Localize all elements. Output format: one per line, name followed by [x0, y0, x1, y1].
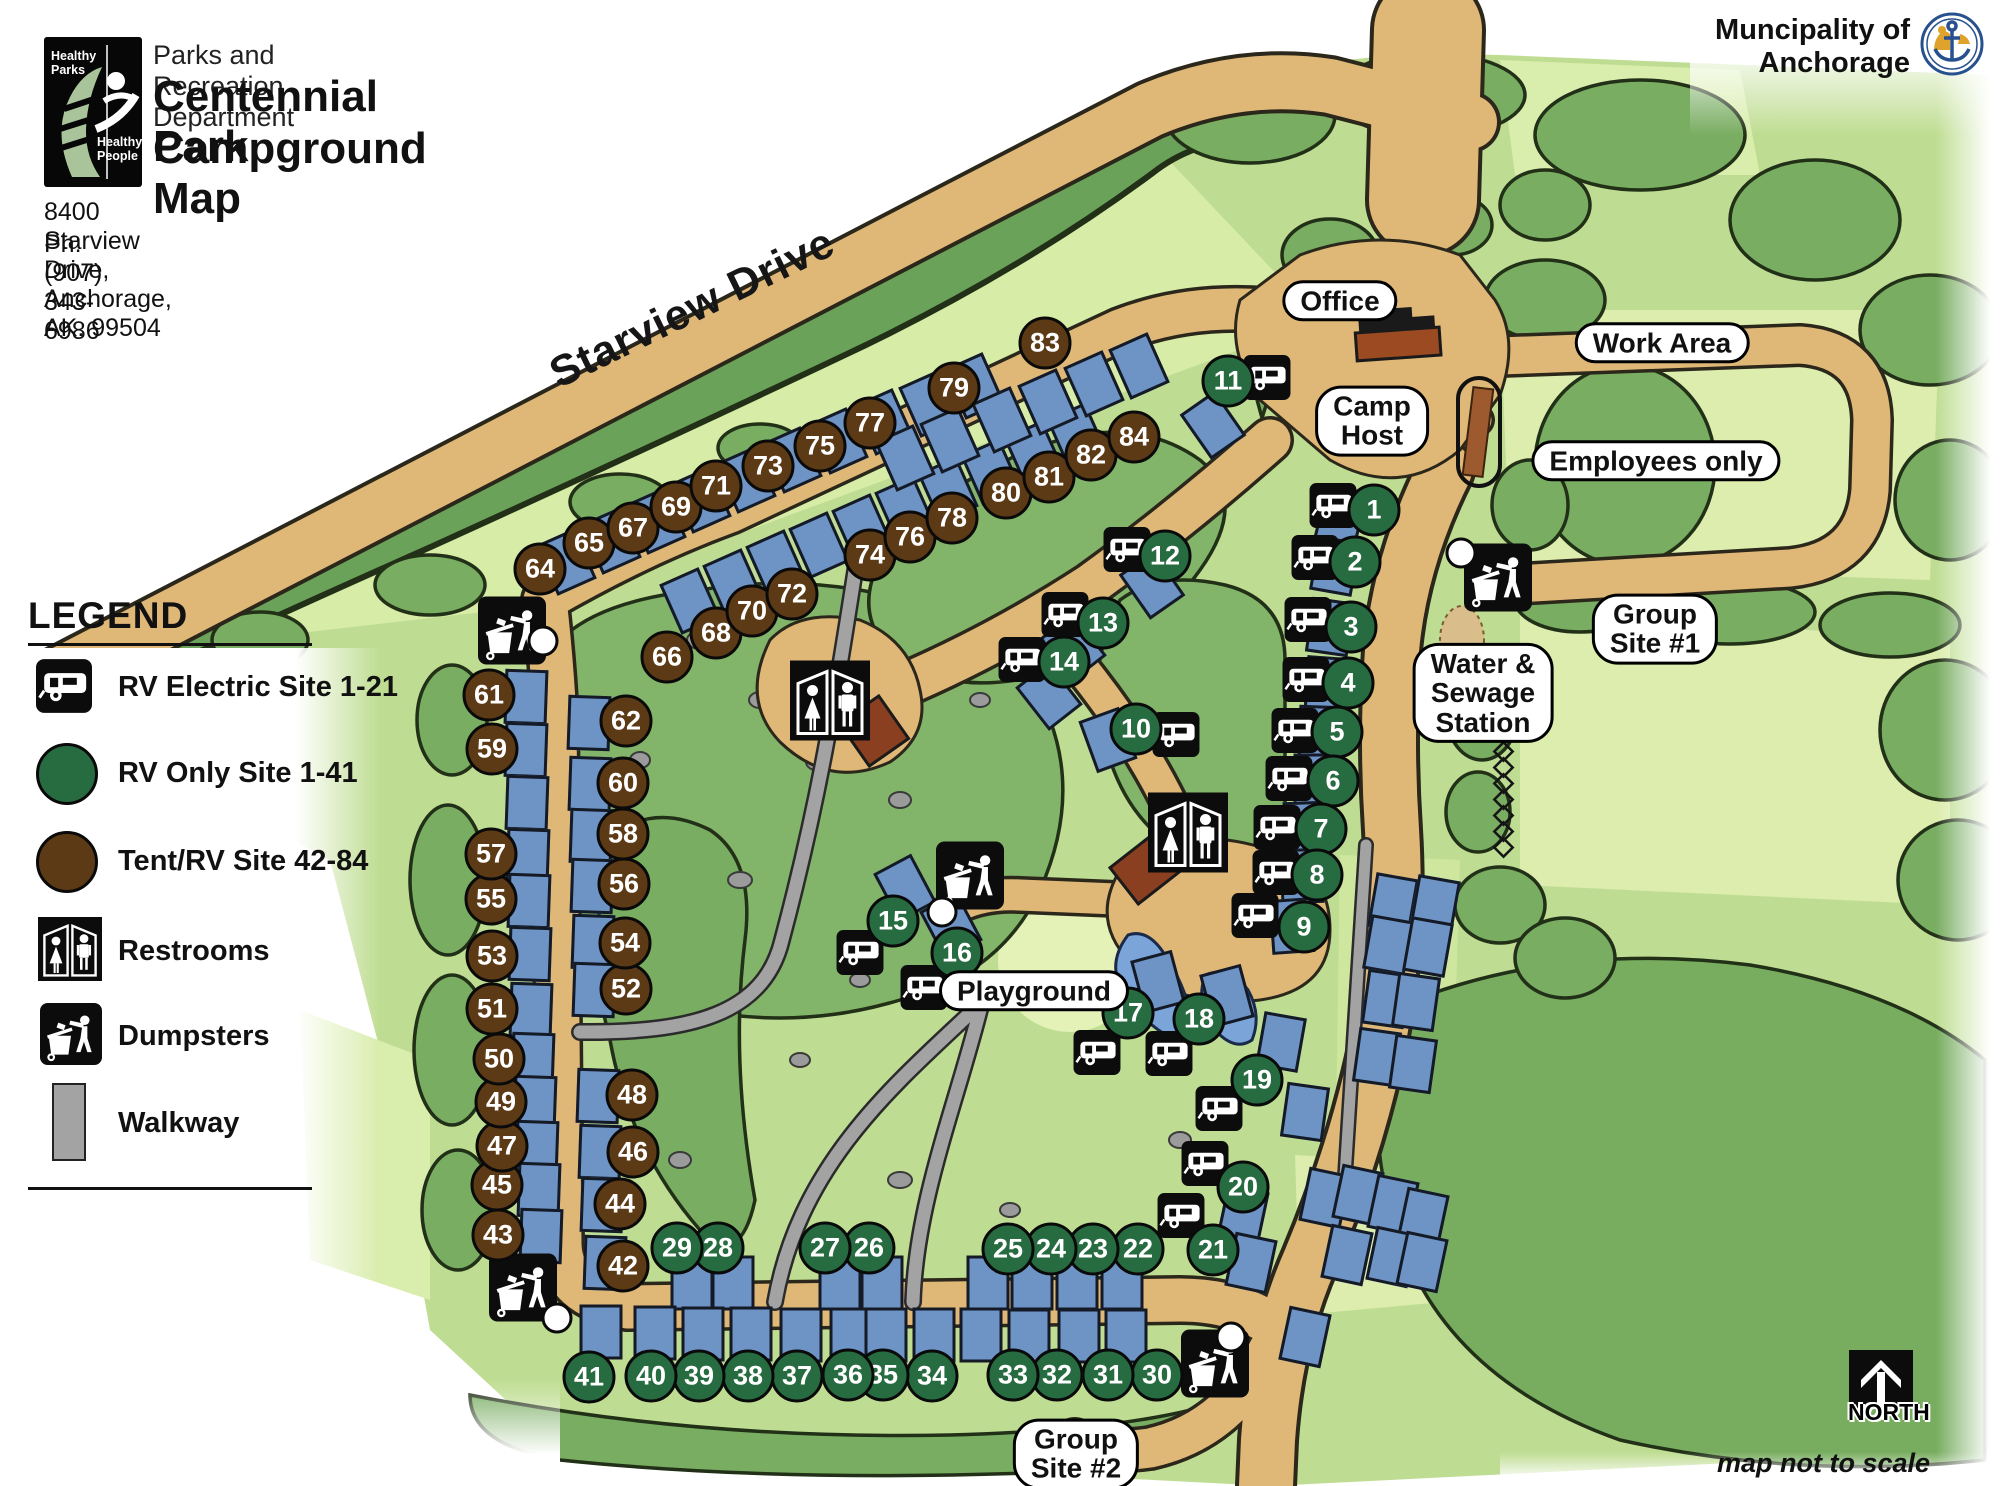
logo-text-top: Healthy Parks	[51, 49, 96, 78]
legend-title: LEGEND	[28, 595, 188, 637]
north-indicator: NORTH	[1848, 1350, 1914, 1426]
rv-only-circle	[36, 743, 98, 805]
municipality-name: Muncipality of Anchorage	[1640, 14, 1910, 80]
restrooms-icon	[38, 917, 102, 981]
legend-rule	[28, 643, 312, 646]
sand-patch	[1440, 606, 1484, 674]
scale-note: map not to scale	[1640, 1448, 1930, 1479]
rv-electric-icon	[36, 659, 92, 713]
north-label: NORTH	[1848, 1399, 1914, 1426]
phone: Ph: (907) 343-6986	[44, 230, 102, 346]
tent-rv-circle	[36, 831, 98, 893]
walkway-swatch	[52, 1083, 86, 1161]
parks-rec-logo: Healthy Parks Healthy People	[44, 37, 142, 187]
page-title-line2: Campground Map	[153, 124, 427, 224]
legend-rule-bottom	[28, 1187, 312, 1190]
logo-text-bottom: Healthy People	[97, 135, 142, 164]
dumpsters-icon	[40, 1003, 102, 1065]
municipality-seal-icon	[1920, 12, 1984, 76]
campground-map-page: 1234567891011121314151617181920212223242…	[0, 0, 2000, 1486]
